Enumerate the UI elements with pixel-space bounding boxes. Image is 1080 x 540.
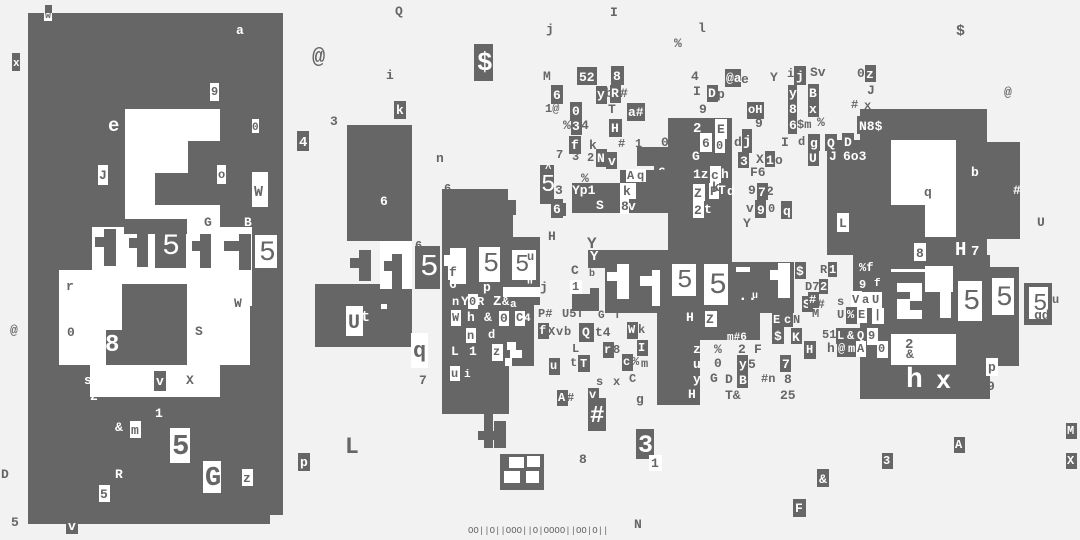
svg-text:y: y bbox=[739, 357, 747, 372]
svg-text:t4: t4 bbox=[595, 325, 611, 340]
svg-text:#n: #n bbox=[761, 372, 775, 386]
svg-text:C: C bbox=[629, 372, 636, 386]
svg-text:I: I bbox=[693, 84, 701, 99]
svg-text:z: z bbox=[866, 67, 874, 82]
svg-text:d: d bbox=[727, 184, 735, 199]
svg-text:@: @ bbox=[312, 45, 325, 70]
svg-text:D: D bbox=[725, 372, 733, 387]
svg-text:u: u bbox=[1052, 293, 1059, 307]
svg-text:5: 5 bbox=[11, 515, 19, 530]
svg-text:o: o bbox=[218, 168, 225, 182]
svg-text:0: 0 bbox=[252, 122, 259, 134]
svg-text:v: v bbox=[746, 201, 754, 216]
svg-text:L: L bbox=[837, 329, 844, 343]
svg-text:k: k bbox=[623, 184, 631, 199]
svg-text:0: 0 bbox=[500, 311, 508, 326]
svg-text:v: v bbox=[608, 154, 616, 169]
svg-text:S: S bbox=[596, 198, 604, 213]
svg-text:N: N bbox=[597, 151, 605, 166]
svg-text:4: 4 bbox=[299, 135, 307, 151]
svg-text:5: 5 bbox=[541, 172, 555, 199]
svg-text:@: @ bbox=[838, 342, 845, 356]
svg-text:Yp1: Yp1 bbox=[572, 183, 596, 198]
svg-text:#: # bbox=[590, 403, 604, 430]
svg-text:E: E bbox=[717, 122, 725, 137]
svg-text:E: E bbox=[858, 308, 865, 322]
svg-text:6: 6 bbox=[449, 277, 457, 292]
svg-text:9: 9 bbox=[987, 379, 995, 394]
svg-text:L: L bbox=[345, 434, 359, 460]
svg-text:j: j bbox=[796, 69, 804, 84]
svg-text:1: 1 bbox=[829, 263, 836, 277]
svg-text:b: b bbox=[589, 268, 595, 280]
svg-text:G: G bbox=[598, 310, 605, 322]
svg-text:P#: P# bbox=[538, 307, 552, 321]
svg-text:1: 1 bbox=[155, 406, 163, 421]
svg-text:I: I bbox=[638, 341, 645, 355]
svg-text:5: 5 bbox=[100, 487, 108, 502]
svg-text:@a: @a bbox=[726, 71, 742, 86]
svg-text:x: x bbox=[936, 367, 951, 396]
svg-text:4: 4 bbox=[581, 118, 589, 133]
svg-text:Z: Z bbox=[493, 294, 501, 310]
svg-text:t: t bbox=[704, 202, 712, 217]
svg-text:J: J bbox=[829, 149, 837, 164]
svg-text:a: a bbox=[510, 299, 517, 311]
svg-text:o: o bbox=[775, 153, 783, 168]
svg-text:8: 8 bbox=[105, 332, 119, 359]
svg-text:7: 7 bbox=[782, 357, 790, 372]
svg-text:R: R bbox=[611, 86, 619, 101]
svg-text:gd: gd bbox=[1034, 308, 1050, 323]
svg-text:f: f bbox=[874, 278, 881, 290]
svg-text:7: 7 bbox=[419, 373, 427, 388]
svg-text:3: 3 bbox=[572, 119, 580, 134]
svg-text:0: 0 bbox=[716, 139, 723, 153]
svg-text:#: # bbox=[620, 86, 628, 101]
svg-text:q: q bbox=[637, 169, 644, 183]
svg-text:a: a bbox=[236, 23, 244, 38]
svg-text:H: H bbox=[806, 343, 813, 357]
svg-text:7: 7 bbox=[971, 244, 979, 260]
svg-text:2: 2 bbox=[694, 203, 702, 218]
svg-text:Q: Q bbox=[395, 4, 403, 19]
svg-text:2: 2 bbox=[90, 389, 98, 404]
svg-text:d: d bbox=[798, 135, 805, 149]
svg-text:q: q bbox=[924, 185, 932, 200]
svg-text:^: ^ bbox=[545, 164, 552, 176]
svg-text:1: 1 bbox=[635, 137, 642, 151]
svg-text:A: A bbox=[955, 438, 963, 452]
svg-text:Z: Z bbox=[694, 186, 702, 201]
svg-text:z: z bbox=[493, 345, 500, 359]
svg-text:#: # bbox=[809, 293, 816, 307]
svg-text:W: W bbox=[234, 296, 242, 311]
svg-text:x: x bbox=[864, 99, 871, 113]
svg-text:OO||O||OOO||O|OOOO||OO|O||: OO||O||OOO||O|OOOO||OO|O|| bbox=[468, 526, 608, 536]
svg-text:s: s bbox=[596, 375, 603, 389]
svg-text:4: 4 bbox=[524, 313, 531, 325]
svg-text:U5T: U5T bbox=[562, 307, 584, 321]
svg-text:H: H bbox=[611, 121, 619, 136]
svg-text:C: C bbox=[516, 311, 523, 325]
svg-text:t: t bbox=[361, 309, 370, 326]
svg-text:z: z bbox=[693, 342, 701, 357]
svg-text:9: 9 bbox=[859, 278, 866, 292]
svg-text:6: 6 bbox=[789, 118, 797, 133]
svg-text:T: T bbox=[614, 310, 621, 322]
svg-text:E: E bbox=[773, 313, 780, 327]
svg-text:t: t bbox=[570, 356, 577, 370]
svg-text:q: q bbox=[783, 204, 791, 219]
svg-text:%f: %f bbox=[859, 261, 873, 275]
svg-text:X: X bbox=[186, 373, 194, 388]
svg-text:0: 0 bbox=[714, 356, 722, 371]
svg-text:$: $ bbox=[774, 329, 782, 344]
svg-text:Q: Q bbox=[582, 325, 590, 340]
svg-text:e: e bbox=[108, 115, 119, 137]
svg-text:H: H bbox=[686, 310, 694, 325]
svg-text:U: U bbox=[872, 293, 879, 307]
svg-text:X: X bbox=[548, 325, 556, 339]
svg-text:W: W bbox=[628, 323, 636, 337]
svg-text:H: H bbox=[548, 229, 556, 244]
svg-text:52: 52 bbox=[579, 70, 595, 85]
svg-text:2: 2 bbox=[738, 342, 746, 357]
svg-text:@: @ bbox=[1004, 85, 1012, 100]
svg-text:0: 0 bbox=[661, 135, 669, 150]
svg-text:h: h bbox=[721, 167, 729, 182]
svg-text:h: h bbox=[827, 341, 835, 356]
svg-text:8: 8 bbox=[579, 452, 587, 467]
svg-text:j: j bbox=[546, 22, 554, 37]
svg-text:p: p bbox=[988, 360, 996, 375]
svg-text:f: f bbox=[539, 324, 546, 338]
svg-text:i: i bbox=[464, 369, 471, 381]
svg-text:u: u bbox=[527, 250, 534, 264]
svg-text:n: n bbox=[436, 151, 444, 166]
svg-text:9: 9 bbox=[699, 102, 707, 117]
svg-text:r: r bbox=[66, 279, 74, 294]
svg-text:A: A bbox=[558, 391, 566, 405]
svg-text:G: G bbox=[692, 149, 700, 164]
svg-text:h: h bbox=[467, 310, 475, 325]
svg-text:k: k bbox=[638, 323, 645, 337]
svg-text:G: G bbox=[710, 371, 718, 386]
svg-text:5: 5 bbox=[996, 283, 1013, 314]
svg-text:k: k bbox=[396, 103, 404, 118]
svg-text:&: & bbox=[484, 310, 492, 325]
svg-text:#: # bbox=[567, 391, 574, 405]
svg-text:5: 5 bbox=[420, 250, 439, 285]
svg-text:l: l bbox=[698, 21, 706, 36]
svg-text:K: K bbox=[792, 330, 800, 345]
svg-text:B: B bbox=[244, 215, 252, 230]
svg-text:U: U bbox=[837, 308, 844, 322]
svg-text:$: $ bbox=[796, 264, 804, 279]
svg-text:2: 2 bbox=[766, 184, 774, 199]
svg-text:#: # bbox=[851, 98, 858, 112]
svg-text:s: s bbox=[837, 295, 844, 309]
svg-text:&: & bbox=[115, 420, 123, 435]
svg-text:N: N bbox=[634, 517, 642, 532]
svg-text:1: 1 bbox=[651, 456, 659, 471]
svg-text:y: y bbox=[789, 86, 797, 101]
svg-text:3: 3 bbox=[555, 183, 563, 198]
svg-text:6o3: 6o3 bbox=[843, 149, 867, 164]
svg-text:v: v bbox=[589, 388, 596, 402]
svg-text:%: % bbox=[817, 115, 825, 130]
svg-text:n: n bbox=[467, 329, 474, 343]
svg-text:%: % bbox=[847, 308, 855, 322]
svg-text:&: & bbox=[906, 347, 914, 362]
svg-text:W: W bbox=[254, 184, 263, 201]
svg-text:3: 3 bbox=[740, 154, 748, 169]
svg-text:D7: D7 bbox=[805, 280, 819, 294]
svg-text:oH: oH bbox=[748, 103, 762, 117]
svg-text:p: p bbox=[483, 280, 491, 295]
svg-text:B: B bbox=[739, 373, 747, 388]
svg-text:z: z bbox=[243, 471, 251, 486]
svg-text:8: 8 bbox=[784, 372, 792, 387]
svg-text:u: u bbox=[550, 359, 557, 373]
svg-text:g: g bbox=[636, 392, 644, 407]
svg-text:D: D bbox=[708, 86, 716, 101]
svg-text:W: W bbox=[452, 311, 460, 325]
svg-text:G: G bbox=[204, 215, 212, 230]
svg-text:m: m bbox=[641, 357, 648, 371]
svg-text:T&: T& bbox=[725, 388, 741, 403]
svg-text:%: % bbox=[563, 118, 571, 133]
svg-text:6: 6 bbox=[380, 194, 388, 209]
svg-text:5: 5 bbox=[172, 430, 189, 463]
svg-text:T: T bbox=[580, 357, 587, 371]
svg-text:8: 8 bbox=[613, 69, 621, 84]
svg-text:r: r bbox=[604, 343, 611, 357]
svg-text:51: 51 bbox=[822, 328, 836, 342]
svg-text:e: e bbox=[741, 72, 749, 87]
svg-text:5: 5 bbox=[259, 238, 276, 269]
svg-text:0: 0 bbox=[768, 202, 775, 216]
svg-text:D: D bbox=[1, 467, 9, 482]
svg-text:#: # bbox=[1013, 183, 1021, 198]
svg-text:0: 0 bbox=[469, 295, 476, 309]
svg-text:F6: F6 bbox=[750, 165, 766, 180]
svg-text:R: R bbox=[477, 295, 485, 309]
svg-text:5: 5 bbox=[677, 265, 693, 295]
svg-text:6: 6 bbox=[553, 202, 561, 217]
svg-text:C: C bbox=[571, 263, 579, 278]
svg-text:y: y bbox=[693, 372, 701, 387]
svg-text:H: H bbox=[688, 387, 696, 402]
svg-text:2: 2 bbox=[587, 151, 594, 165]
svg-text:%: % bbox=[674, 36, 682, 51]
svg-text:7: 7 bbox=[556, 148, 563, 162]
svg-text:Q: Q bbox=[857, 329, 864, 343]
svg-text:1: 1 bbox=[766, 153, 774, 168]
svg-text:9: 9 bbox=[211, 85, 218, 99]
svg-text:&: & bbox=[847, 329, 855, 343]
svg-text:9: 9 bbox=[757, 203, 765, 218]
svg-text:Z: Z bbox=[706, 312, 714, 327]
svg-text:b: b bbox=[564, 325, 571, 339]
svg-text:a: a bbox=[862, 293, 869, 307]
svg-text:I: I bbox=[781, 135, 789, 150]
svg-text:9: 9 bbox=[755, 116, 763, 131]
svg-text:U: U bbox=[1037, 215, 1045, 230]
svg-text:H: H bbox=[955, 239, 966, 261]
svg-text:s: s bbox=[84, 373, 92, 388]
svg-text:U: U bbox=[809, 151, 817, 166]
svg-text:3: 3 bbox=[330, 114, 338, 129]
svg-text:J: J bbox=[867, 83, 875, 98]
svg-text:v: v bbox=[628, 199, 636, 214]
svg-text:A: A bbox=[627, 169, 635, 183]
svg-text:F: F bbox=[754, 342, 762, 357]
svg-text:v: v bbox=[556, 325, 563, 339]
svg-text:D: D bbox=[844, 135, 852, 150]
svg-text:5: 5 bbox=[748, 357, 756, 372]
svg-text:c: c bbox=[623, 355, 630, 369]
svg-text:M: M bbox=[543, 69, 551, 84]
svg-text:%: % bbox=[714, 342, 722, 357]
svg-text:J: J bbox=[99, 168, 107, 183]
svg-text:1z: 1z bbox=[693, 167, 709, 182]
svg-text:X: X bbox=[1067, 454, 1075, 468]
svg-text:u: u bbox=[693, 357, 701, 372]
svg-text:p: p bbox=[717, 87, 725, 102]
svg-text:G: G bbox=[205, 464, 221, 494]
svg-text:Y: Y bbox=[590, 249, 599, 265]
svg-text:h: h bbox=[906, 365, 923, 396]
svg-text:9: 9 bbox=[868, 329, 875, 343]
svg-text:B: B bbox=[809, 86, 817, 101]
svg-text:b: b bbox=[971, 165, 979, 180]
svg-text:N: N bbox=[793, 313, 800, 327]
svg-text:6: 6 bbox=[553, 88, 561, 103]
svg-text:5: 5 bbox=[963, 285, 980, 318]
svg-text:$: $ bbox=[956, 23, 965, 40]
svg-text:5: 5 bbox=[709, 269, 727, 303]
svg-text:j: j bbox=[743, 134, 751, 150]
svg-text:#: # bbox=[618, 137, 625, 151]
svg-text:g: g bbox=[810, 136, 818, 151]
svg-text:5: 5 bbox=[483, 250, 499, 280]
svg-text:&: & bbox=[819, 472, 827, 487]
svg-text:3: 3 bbox=[883, 454, 890, 468]
svg-text:T: T bbox=[608, 102, 616, 117]
svg-text:v: v bbox=[68, 519, 76, 534]
svg-text:L: L bbox=[451, 344, 459, 359]
svg-text:x: x bbox=[13, 58, 20, 70]
svg-text:7: 7 bbox=[758, 185, 766, 200]
svg-text:9: 9 bbox=[748, 183, 756, 198]
svg-text:0: 0 bbox=[572, 104, 580, 119]
svg-text:A: A bbox=[857, 342, 865, 356]
svg-text:4: 4 bbox=[691, 69, 699, 84]
svg-text:i: i bbox=[386, 68, 394, 83]
svg-text:M: M bbox=[812, 307, 819, 321]
svg-text:1: 1 bbox=[572, 280, 579, 294]
svg-text:6: 6 bbox=[702, 136, 710, 151]
svg-text:8: 8 bbox=[613, 343, 620, 357]
svg-text:x: x bbox=[809, 102, 817, 117]
svg-text:8: 8 bbox=[789, 102, 797, 117]
svg-text:q: q bbox=[413, 339, 426, 364]
svg-text:3: 3 bbox=[572, 150, 579, 164]
svg-text:L: L bbox=[572, 342, 579, 356]
svg-text:y: y bbox=[597, 87, 605, 102]
svg-text:u: u bbox=[451, 367, 458, 381]
svg-text:j: j bbox=[540, 280, 548, 295]
svg-text:%: % bbox=[632, 355, 640, 369]
svg-text:Y: Y bbox=[770, 70, 778, 85]
svg-text:@: @ bbox=[10, 323, 18, 338]
svg-text:8: 8 bbox=[916, 246, 924, 261]
svg-text:Y: Y bbox=[743, 216, 751, 231]
svg-text:$: $ bbox=[477, 48, 493, 78]
svg-text:a#: a# bbox=[628, 105, 644, 120]
svg-text:N8$: N8$ bbox=[859, 119, 883, 134]
svg-text:L: L bbox=[839, 216, 847, 231]
svg-text:0: 0 bbox=[67, 325, 75, 340]
svg-text:i: i bbox=[787, 67, 794, 81]
svg-text:6: 6 bbox=[415, 239, 422, 253]
svg-text:V: V bbox=[852, 293, 860, 307]
svg-text:M: M bbox=[1067, 424, 1074, 438]
svg-text:&: & bbox=[502, 295, 510, 309]
svg-text:$m: $m bbox=[797, 118, 811, 132]
svg-text:Sv: Sv bbox=[810, 65, 826, 80]
svg-text:m: m bbox=[131, 423, 139, 438]
svg-text:0: 0 bbox=[857, 66, 865, 81]
svg-text:d: d bbox=[734, 135, 742, 150]
svg-text:1: 1 bbox=[469, 344, 477, 359]
svg-text:w: w bbox=[45, 11, 51, 22]
svg-text:u: u bbox=[752, 291, 758, 302]
svg-text:p: p bbox=[300, 455, 308, 470]
svg-text:|:: |: bbox=[874, 308, 888, 322]
svg-text:R: R bbox=[115, 467, 123, 482]
svg-text:2: 2 bbox=[820, 280, 827, 294]
svg-text:U: U bbox=[348, 312, 360, 335]
svg-text:5: 5 bbox=[162, 230, 180, 264]
svg-text:S: S bbox=[195, 324, 203, 339]
svg-text:k: k bbox=[712, 180, 720, 195]
svg-text:0: 0 bbox=[878, 342, 885, 356]
svg-text:1@: 1@ bbox=[545, 102, 559, 116]
svg-text:25: 25 bbox=[780, 388, 796, 403]
svg-text:v: v bbox=[156, 374, 164, 389]
svg-text:Y: Y bbox=[461, 294, 469, 309]
svg-text:F: F bbox=[795, 501, 803, 516]
svg-text:n: n bbox=[452, 295, 459, 309]
svg-text:d: d bbox=[488, 328, 495, 342]
svg-text:c: c bbox=[784, 313, 791, 327]
svg-text:R: R bbox=[820, 263, 828, 277]
svg-text:I: I bbox=[610, 5, 618, 20]
svg-text:x: x bbox=[613, 375, 620, 389]
svg-text:m: m bbox=[848, 342, 855, 356]
